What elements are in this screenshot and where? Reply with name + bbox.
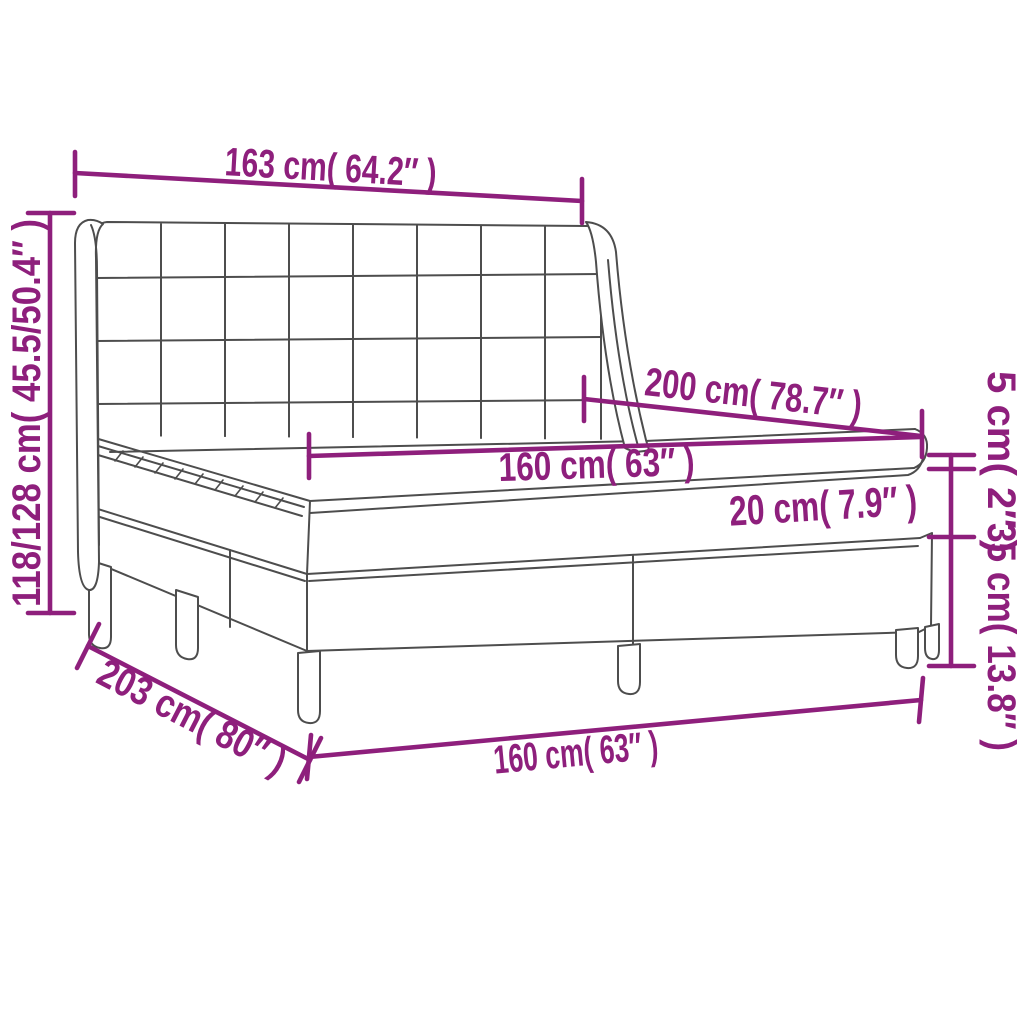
dim-label-overall-height: 118/128 cm( 45.5/50.4″ ) bbox=[5, 219, 49, 607]
leg bbox=[896, 628, 918, 668]
dim-label-base-height: 35 cm( 13.8″ ) bbox=[979, 523, 1023, 751]
dim-tick bbox=[919, 678, 923, 722]
leg bbox=[176, 590, 198, 659]
dim-tick bbox=[307, 735, 311, 779]
dim-label-headboard-width: 163 cm( 64.2″ ) bbox=[224, 140, 438, 196]
dim-label-base-length: 203 cm( 80″ ) bbox=[90, 651, 293, 784]
dim-label-mattress-width: 160 cm( 63″ ) bbox=[498, 440, 695, 490]
leg bbox=[925, 624, 939, 659]
leg bbox=[298, 651, 320, 723]
dim-overall-height: 118/128 cm( 45.5/50.4″ ) bbox=[5, 213, 74, 613]
leg bbox=[618, 644, 640, 694]
dim-right-heights: 5 cm( 2″ ) 35 cm( 13.8″ ) bbox=[929, 371, 1023, 751]
bed-dimension-diagram: 163 cm( 64.2″ ) 118/128 cm( 45.5/50.4″ )… bbox=[0, 0, 1024, 1024]
dim-headboard-width: 163 cm( 64.2″ ) bbox=[75, 140, 582, 223]
dim-label-base-front-width: 160 cm( 63″ ) bbox=[492, 724, 660, 783]
dim-base-front-width: 160 cm( 63″ ) bbox=[307, 678, 923, 783]
diagram-canvas: 163 cm( 64.2″ ) 118/128 cm( 45.5/50.4″ )… bbox=[0, 0, 1024, 1024]
